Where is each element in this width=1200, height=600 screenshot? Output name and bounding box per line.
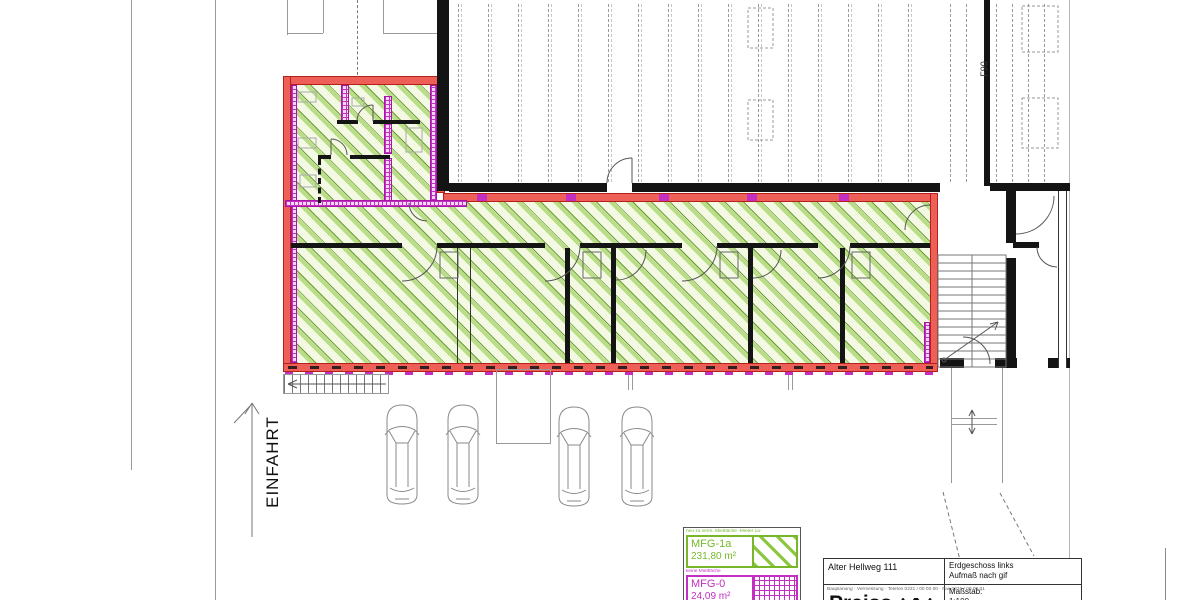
unit-outline-bottom [283, 363, 938, 372]
joist-line [611, 4, 612, 182]
joist-line [731, 4, 732, 182]
magenta-wall [430, 85, 437, 201]
magenta-wall [384, 96, 392, 154]
wall-hall-bottom [632, 183, 940, 192]
window-marker [659, 194, 669, 201]
magenta-wall [291, 85, 297, 363]
joist-line [996, 4, 997, 182]
wall-segment [995, 358, 1017, 368]
joist-line [881, 4, 882, 182]
wall-segment [1013, 242, 1039, 248]
exterior-pad [496, 369, 551, 444]
joist-line [518, 4, 519, 182]
sheet-title-line1: Erdgeschoss links [949, 561, 1077, 571]
partition-wall [840, 248, 845, 363]
magenta-wall [384, 158, 392, 202]
legend-item-mfg1a: MFG-1a 231,80 m² [686, 535, 798, 568]
title-block: Alter Hellweg 111 Erdgeschoss links Aufm… [823, 558, 1082, 600]
window-marker [566, 194, 576, 201]
wall-divider [437, 243, 545, 248]
company-logo-text: Preiss [829, 593, 892, 600]
wall-dashed [318, 159, 321, 203]
joist-line [551, 4, 552, 182]
magenta-wall [924, 322, 930, 363]
partition-wall [611, 248, 616, 363]
window-marker [839, 194, 849, 201]
joist-line [578, 4, 579, 182]
joist-line [668, 4, 669, 182]
wall-segment [350, 155, 390, 159]
sheet-title-line2: Aufmaß nach gif [949, 571, 1077, 581]
joist-line [608, 4, 609, 182]
partition-wall [748, 248, 753, 363]
window-marker [747, 194, 757, 201]
wall-segment [940, 358, 964, 368]
area-legend: neu zu verm. Mietfläche -Mieter 1a- MFG-… [683, 527, 801, 600]
project-title: Alter Hellweg 111 [824, 559, 944, 584]
joist-line [638, 4, 639, 182]
partition-thin [470, 248, 471, 363]
joist-line [758, 4, 759, 182]
magenta-wall [341, 85, 349, 123]
wall-hall-left [437, 0, 449, 191]
joist-line [548, 4, 549, 182]
wall-f90 [984, 0, 990, 186]
wall-exterior-right [1058, 191, 1067, 368]
joist-line [761, 4, 762, 182]
window-marker [477, 194, 487, 201]
floor-plan-sheet: EINFAHRT F90 neu zu verm. Mietfläche -Mi… [0, 0, 1200, 600]
wall-divider [850, 243, 930, 248]
joist-line [701, 4, 702, 182]
joist-line [1044, 4, 1045, 182]
legend-area: 24,09 m² [691, 591, 749, 600]
partition-thin [457, 248, 458, 363]
partition-wall [565, 248, 570, 363]
magenta-wall [285, 200, 467, 207]
legend-note-green: neu zu verm. Mietfläche -Mieter 1a- [686, 529, 776, 534]
joist-line [848, 4, 849, 182]
joist-line [788, 4, 789, 182]
joist-line [641, 4, 642, 182]
joist-line [521, 4, 522, 182]
rental-area-office [291, 85, 437, 201]
joist-line [821, 4, 822, 182]
f90-label: F90 [979, 58, 993, 80]
joist-line [488, 4, 489, 182]
wall-segment [1006, 191, 1016, 243]
wall-divider [717, 243, 818, 248]
joist-line [911, 4, 912, 182]
einfahrt-label: EINFAHRT [263, 412, 283, 512]
legend-area: 231,80 m² [691, 551, 749, 563]
joist-line [728, 4, 729, 182]
wall-divider [580, 243, 682, 248]
exterior-grating [283, 374, 389, 394]
legend-item-mfg0: MFG-0 24,09 m² [686, 575, 798, 600]
wall-right-top [990, 183, 1070, 191]
joist-line [671, 4, 672, 182]
office-address-line: Bauplanung · Vermessung · Telefon 0231 /… [827, 587, 918, 592]
joist-line [491, 4, 492, 182]
joist-line [581, 4, 582, 182]
legend-code: MFG-1a [691, 538, 749, 551]
unit-outline-right [930, 193, 938, 372]
wall-segment [337, 120, 358, 124]
wall-segment [373, 120, 420, 124]
joist-line [966, 4, 967, 182]
wall-divider [291, 243, 402, 248]
joist-line [698, 4, 699, 182]
unit-outline-hall-top [443, 193, 938, 202]
joist-line [461, 4, 462, 182]
wall-dash-pattern [288, 366, 933, 369]
legend-swatch-magenta-grid [752, 577, 796, 600]
joist-line [458, 4, 459, 182]
legend-code: MFG-0 [691, 578, 749, 591]
wall-hall-bottom [449, 183, 607, 192]
joist-line [818, 4, 819, 182]
joist-line [950, 4, 951, 182]
legend-note-magenta: keine Mietfläche [686, 569, 776, 574]
joist-line [851, 4, 852, 182]
joist-line [791, 4, 792, 182]
joist-line [1028, 4, 1029, 182]
wall-segment [1006, 258, 1016, 366]
joist-line [1012, 4, 1013, 182]
unit-outline-left [283, 76, 291, 372]
joist-line [908, 4, 909, 182]
joist-line [878, 4, 879, 182]
unit-outline-top [283, 76, 445, 85]
legend-swatch-green-hatch [752, 537, 796, 566]
